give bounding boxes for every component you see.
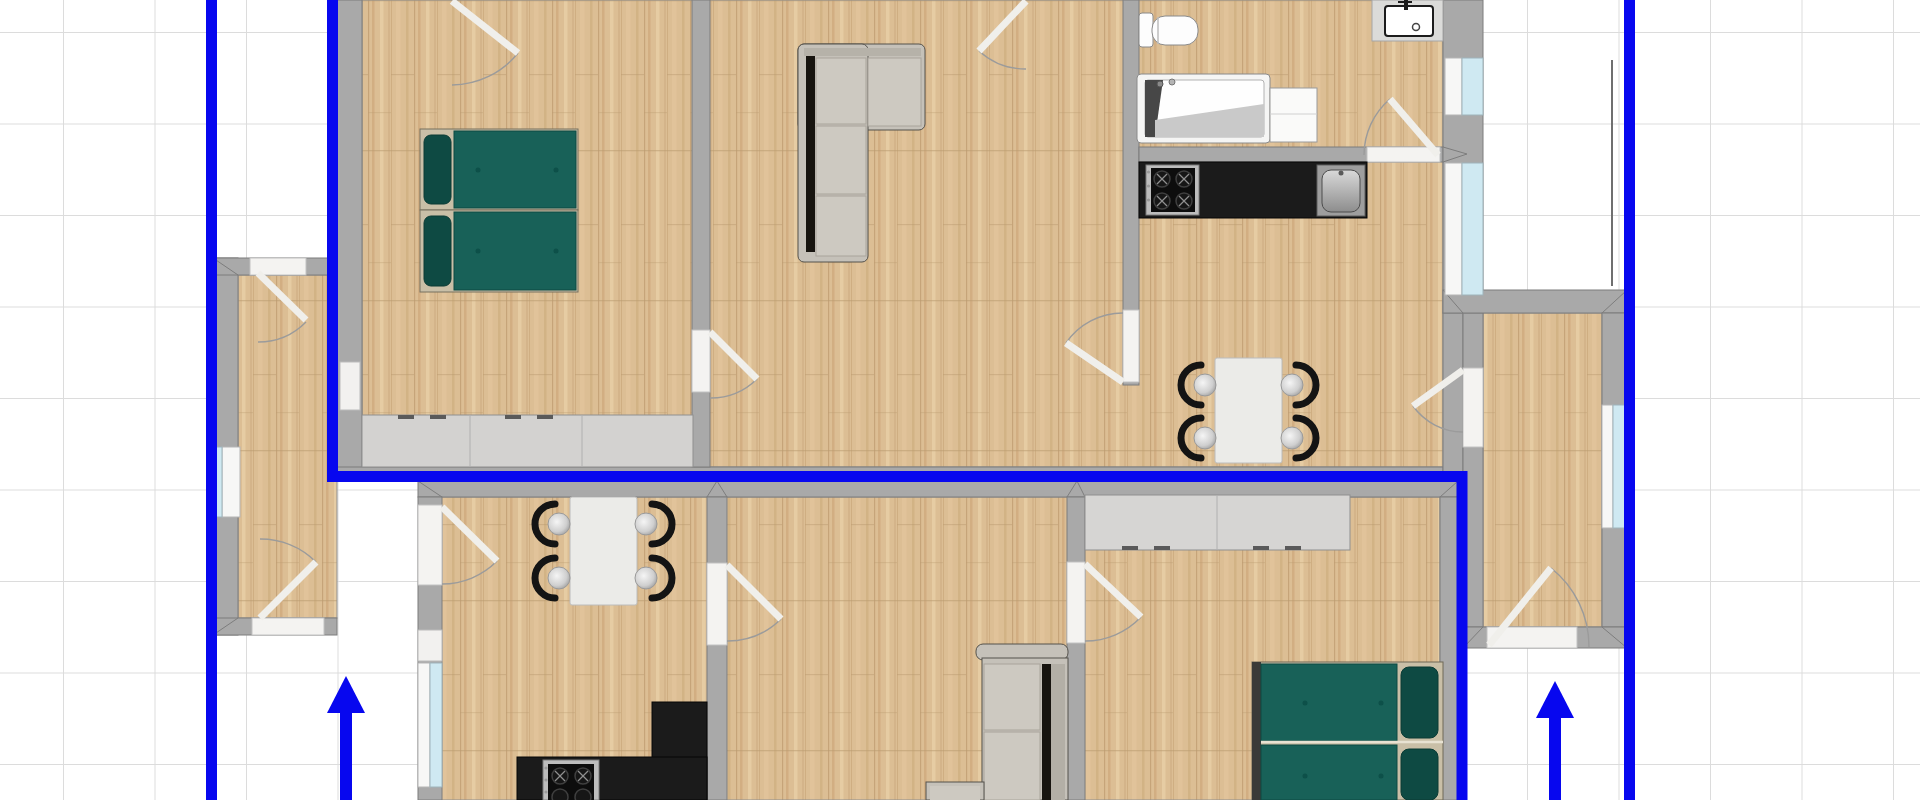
wall-sink-basin <box>1385 6 1433 36</box>
entrance-arrow-right-shaft[interactable] <box>1549 718 1561 800</box>
lower-sofa-back-seam <box>1042 664 1051 800</box>
upper-cabinet-row[interactable] <box>362 415 693 467</box>
double-bed-blanket-top <box>1261 664 1397 741</box>
upper-left-wall-opening[interactable] <box>340 362 360 410</box>
lower-stove-knob-3 <box>544 790 547 793</box>
porch-bottom-door-gap[interactable] <box>252 618 324 635</box>
bath-cabinet[interactable] <box>1270 88 1317 142</box>
upper-kitchen-sink-faucet <box>1339 171 1344 176</box>
porch-window-frame[interactable] <box>222 447 240 517</box>
upper-sofa-back-seam <box>806 56 815 252</box>
upper-sofa-cushion-3 <box>816 196 866 256</box>
upper-sofa-cushion-1 <box>816 58 866 124</box>
lower-counter-handle4 <box>1285 546 1301 550</box>
upper-chair-2-seat <box>1194 427 1216 449</box>
bathtub-faucet-2 <box>1169 79 1175 85</box>
double-bed-button-2 <box>1379 701 1384 706</box>
floor-plan-canvas[interactable] <box>0 0 1920 800</box>
dining-middle-door-gap[interactable] <box>707 563 727 645</box>
double-bed-footband <box>1252 662 1261 800</box>
upper-chair-1-seat <box>1194 374 1216 396</box>
upper-stove-knob-3 <box>1147 198 1150 201</box>
lower-counter-handle2 <box>1154 546 1170 550</box>
double-bed-pillow-bottom <box>1401 749 1438 800</box>
lower-left-wall-opening[interactable] <box>418 630 442 661</box>
shape-root <box>206 0 1635 800</box>
upper-sofa-backrest-bar <box>804 48 921 56</box>
lower-chair-4-seat <box>635 567 657 589</box>
lower-sofa-back-strip <box>1051 664 1065 800</box>
toilet-bowl[interactable] <box>1152 16 1198 45</box>
upper-sofa-cushion-2 <box>816 126 866 194</box>
upper-right-window1-glass <box>1462 58 1483 115</box>
corridor-window-frame[interactable] <box>1602 405 1613 528</box>
double-bed-blanket-bottom <box>1261 745 1397 800</box>
twin-bed-pillow-1 <box>424 135 451 204</box>
upper-chair-4-seat <box>1281 427 1303 449</box>
upper-cabinet-handle1 <box>398 415 414 419</box>
lower-left-window-glass <box>430 663 442 787</box>
lower-left-window-frame[interactable] <box>418 663 430 787</box>
lower-sofa-cushion-1 <box>984 664 1040 730</box>
double-bed-button-4 <box>1379 774 1384 779</box>
upper-right-wall-lower-stub[interactable] <box>1443 313 1463 481</box>
twin-bed-button-3 <box>476 249 481 254</box>
entrance-arrow-left-head[interactable] <box>327 676 365 713</box>
upper-stove-knob-2 <box>1147 184 1150 187</box>
upper-right-window2-frame[interactable] <box>1445 163 1462 295</box>
upper-right-window1-frame[interactable] <box>1445 58 1462 115</box>
upper-right-window2-glass <box>1462 163 1483 295</box>
upper-cabinet-handle3 <box>505 415 521 419</box>
dining-middle-wall[interactable] <box>707 497 727 800</box>
lower-sofa-cushion-2 <box>984 732 1040 800</box>
lower-counter-handle1 <box>1122 546 1138 550</box>
double-bed-button-1 <box>1303 701 1308 706</box>
entrance-arrow-right-head[interactable] <box>1536 681 1574 718</box>
lower-chair-2-seat <box>548 567 570 589</box>
twin-bed-pillow-2 <box>424 216 451 286</box>
bedroom-living-door-gap[interactable] <box>692 330 710 392</box>
corridor-left-door-gap[interactable] <box>1463 368 1483 447</box>
middle-bedroom-wall[interactable] <box>1067 497 1085 800</box>
upper-dining-table[interactable] <box>1215 358 1282 463</box>
upper-cabinet-handle4 <box>537 415 553 419</box>
bathtub-faucet-1 <box>1157 81 1163 87</box>
floorplan-svg <box>0 0 1920 800</box>
double-bed-pillow-top <box>1401 667 1438 738</box>
lower-chair-3-seat <box>635 513 657 535</box>
entrance-arrow-left-shaft[interactable] <box>340 713 352 800</box>
lower-sofa-chaise-cushion <box>930 786 980 800</box>
upper-stove-knob-1 <box>1147 170 1150 173</box>
bedroom-living-wall[interactable] <box>692 0 710 467</box>
outline-outer-left[interactable] <box>206 0 217 800</box>
upper-chair-3-seat <box>1281 374 1303 396</box>
lower-dining-table[interactable] <box>570 497 637 605</box>
lower-stove-burner-4 <box>575 789 591 800</box>
upper-cabinet-handle2 <box>430 415 446 419</box>
lower-stove-burner-3 <box>552 789 568 800</box>
porch-top-door-gap[interactable] <box>250 258 306 275</box>
lower-counter-handle3 <box>1253 546 1269 550</box>
upper-sofa-chaise-cushion <box>868 58 921 126</box>
outline-outer-right[interactable] <box>1624 0 1635 800</box>
double-bed-button-3 <box>1303 774 1308 779</box>
middle-bedroom-door-gap[interactable] <box>1067 562 1085 643</box>
twin-bed-button-1 <box>476 168 481 173</box>
twin-bed-button-4 <box>554 249 559 254</box>
lower-left-door-gap[interactable] <box>418 505 442 585</box>
lower-stove-knob-1 <box>544 766 547 769</box>
upper-kitchen-sink-basin <box>1322 170 1360 212</box>
reference-line <box>1611 60 1613 286</box>
lower-chair-1-seat <box>548 513 570 535</box>
toilet-tank[interactable] <box>1139 13 1153 47</box>
living-bath-door-gap[interactable] <box>1123 310 1139 382</box>
porch-floor <box>238 275 337 618</box>
lower-stove-knob-2 <box>544 778 547 781</box>
twin-bed-button-2 <box>554 168 559 173</box>
